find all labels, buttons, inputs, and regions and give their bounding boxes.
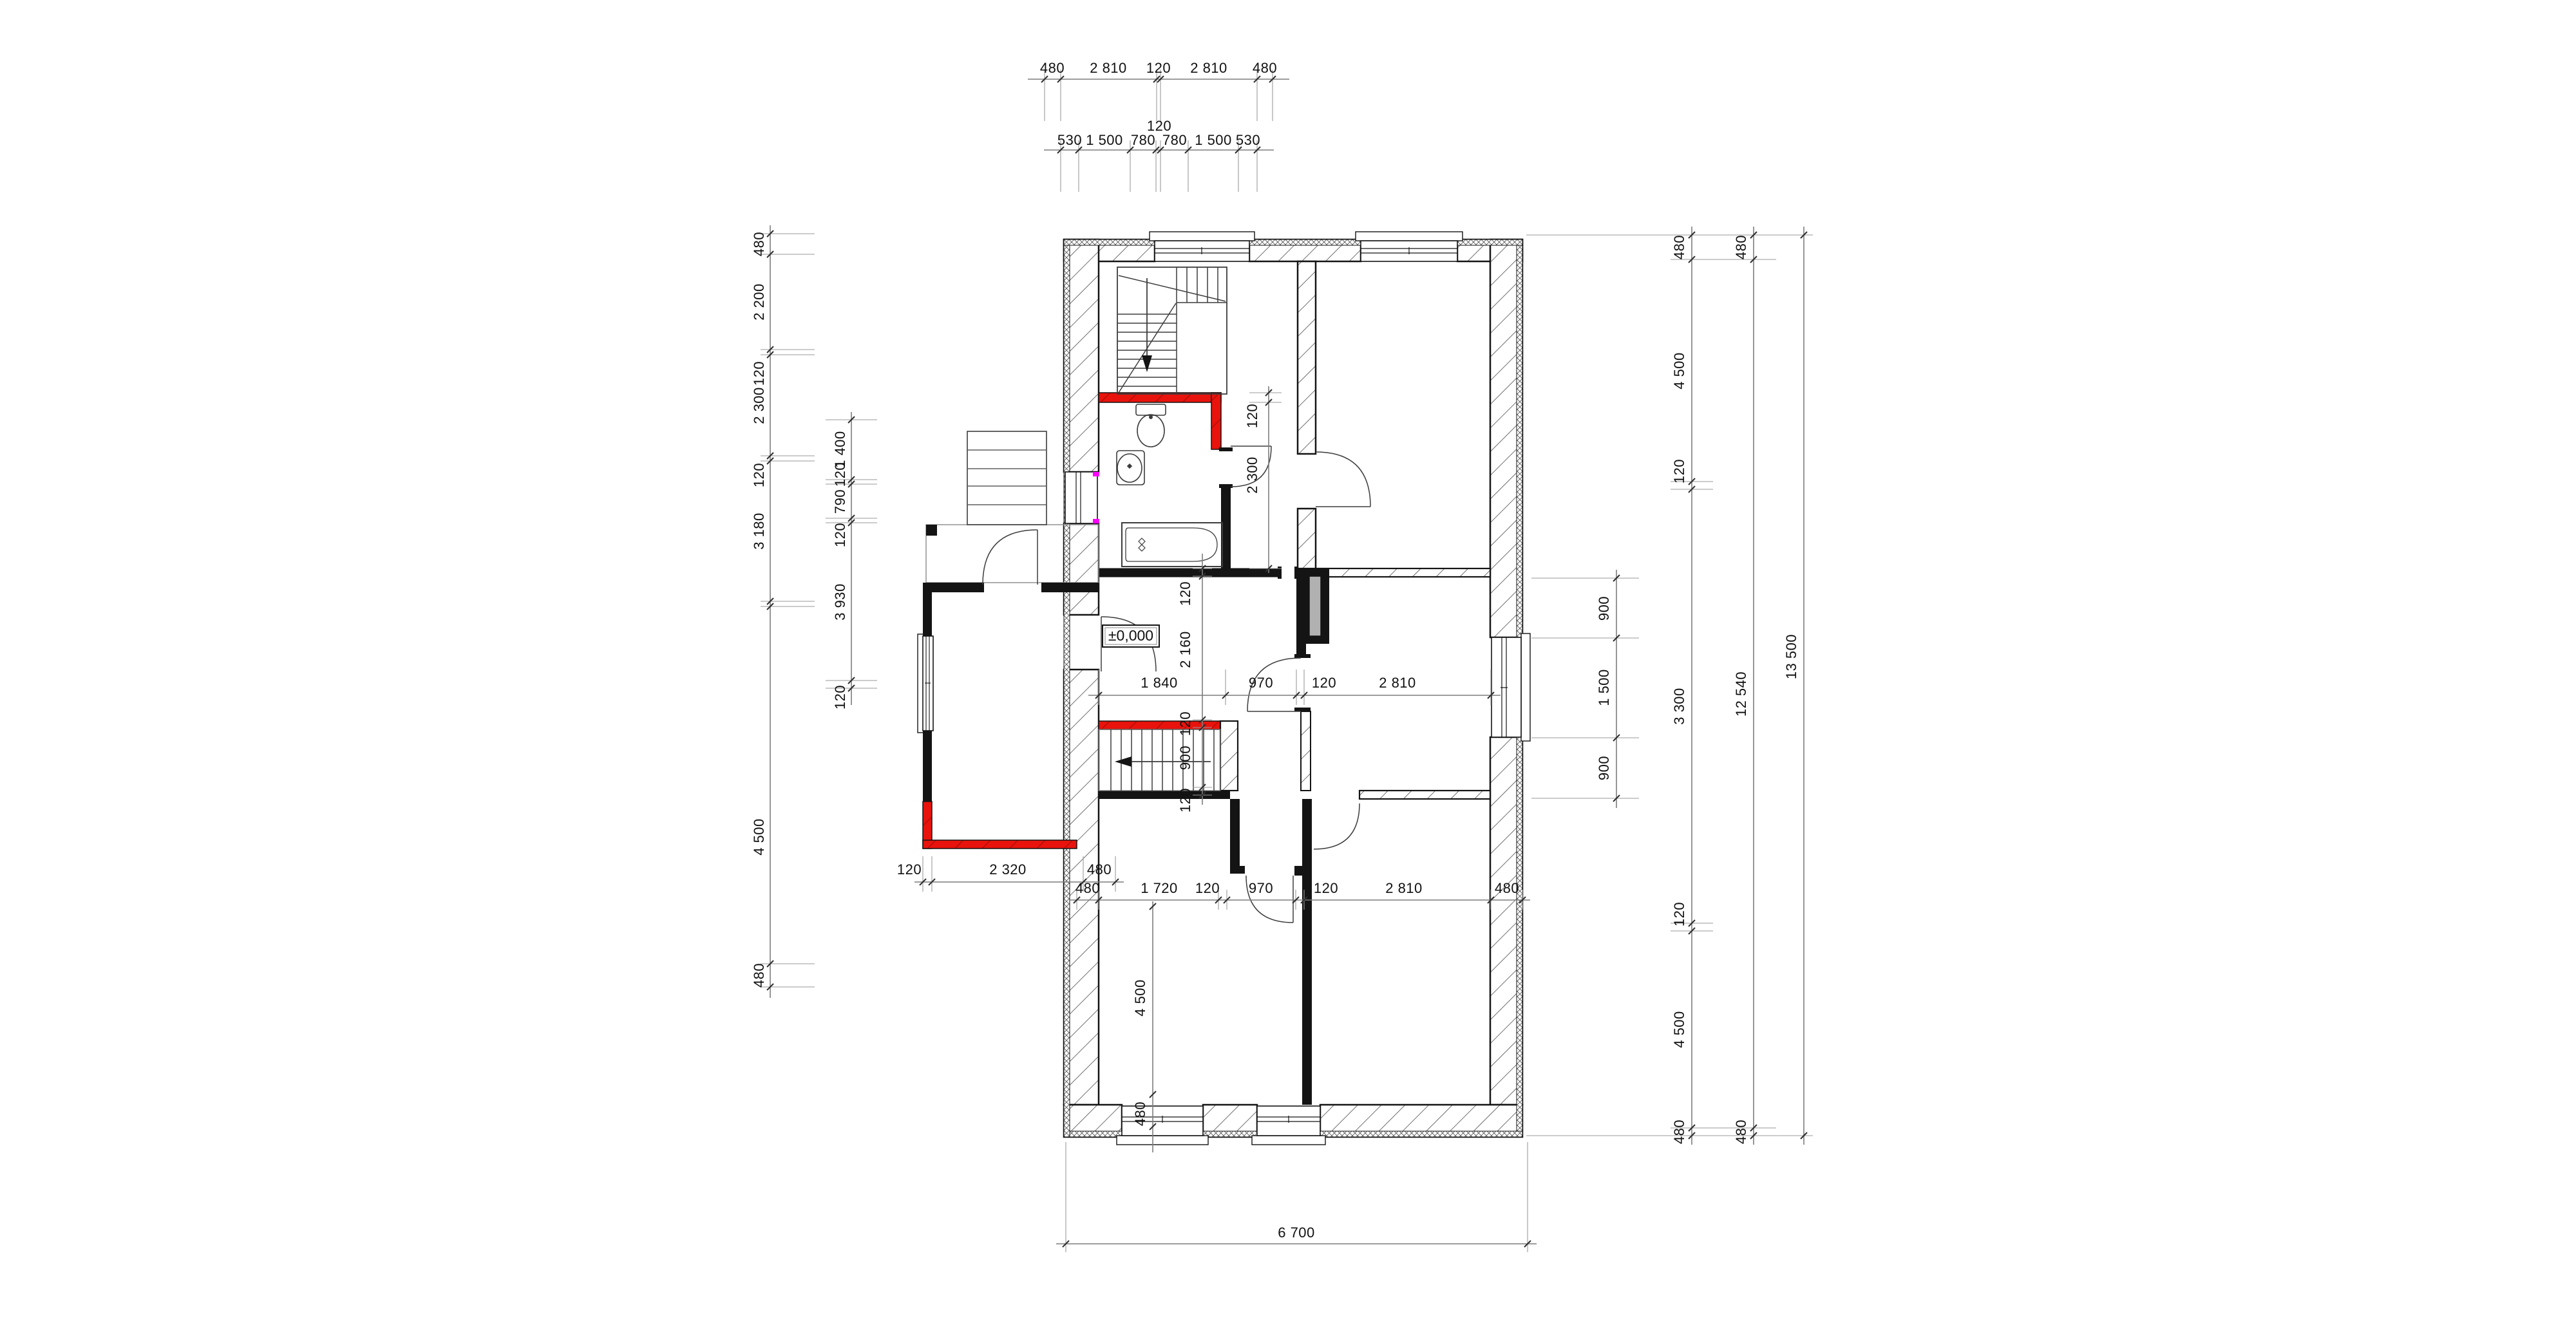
door-jamb [1219, 484, 1233, 488]
bathtub [1122, 523, 1222, 567]
wall-basement-stair-right [1220, 721, 1238, 791]
stair-direction-arrow [1142, 278, 1152, 372]
dim-label: 480 [1075, 880, 1100, 896]
dim-label: 4 500 [1132, 979, 1148, 1017]
dim-label: 480 [1087, 861, 1112, 877]
dim-label: 480 [1253, 60, 1277, 76]
dim-label: 1 500 [1195, 132, 1232, 148]
dim-label: 120 [1671, 902, 1687, 926]
dim-label: 480 [1495, 880, 1519, 896]
porch-top-wall-left [923, 583, 984, 592]
door-jamb [1294, 866, 1302, 876]
door-top-right-room [1316, 452, 1370, 507]
dim-label: 120 [897, 861, 922, 877]
dim-label: 3 300 [1671, 688, 1687, 725]
bathroom [1117, 404, 1222, 567]
red-wall-porch-horizontal [923, 840, 1077, 849]
dim-label: 2 320 [989, 861, 1027, 877]
level-value: ±0,000 [1108, 627, 1153, 644]
dim-label: 2 810 [1379, 675, 1416, 691]
dim-label: 120 [751, 361, 767, 386]
window-bottom-1 [1117, 1106, 1208, 1145]
level-marker: ±0,000 [1103, 625, 1159, 647]
door-jamb [1294, 708, 1311, 711]
porch-top-wall-right [1041, 583, 1099, 592]
dim-label: 120 [1177, 788, 1193, 812]
dim-label: 2 160 [1177, 631, 1193, 668]
dim-label: 1 500 [1086, 132, 1123, 148]
sink [1117, 451, 1144, 485]
dim-label: 2 810 [1090, 60, 1127, 76]
dim-label: 120 [1244, 404, 1260, 428]
entry-steps [967, 431, 1046, 525]
dim-label: 120 [1671, 459, 1687, 483]
dim-label: 480 [1733, 1120, 1749, 1144]
floor-plan-canvas: ±0,000 [0, 0, 2576, 1323]
main-stair [1117, 267, 1227, 394]
drain-icon [1139, 538, 1145, 551]
window-bathroom [1065, 472, 1099, 523]
dim-label: 900 [1596, 596, 1612, 621]
dim-label: 120 [1146, 60, 1171, 76]
dim-label: 900 [1596, 756, 1612, 780]
dim-label: 120 [1177, 581, 1193, 606]
dim-label: 480 [1040, 60, 1065, 76]
terrace-post [926, 525, 937, 536]
dim-label: 120 [832, 462, 848, 487]
dimension-labels: 480 2 810 120 2 810 480 530 1 500 780 12… [751, 60, 1799, 1241]
porch-left-wall-lower [923, 731, 932, 802]
dim-label: 780 [1131, 132, 1155, 148]
window-top-2 [1356, 232, 1463, 261]
dim-label: 4 500 [1671, 1011, 1687, 1048]
dim-label: 790 [832, 489, 848, 514]
window-bottom-2 [1252, 1106, 1325, 1145]
dim-label: 1 720 [1141, 880, 1178, 896]
insulation-left [1064, 245, 1070, 1137]
dim-label: 2 300 [751, 387, 767, 424]
wall-h2-right [1359, 791, 1490, 799]
dim-label: 480 [751, 232, 767, 256]
dim-label: 4 500 [1671, 352, 1687, 389]
chimney-flue [1309, 576, 1321, 636]
wall-corridor-left [1230, 799, 1240, 874]
dim-label: 2 300 [1244, 456, 1260, 494]
door-middle-right-rear [1314, 803, 1359, 849]
door-terrace [983, 530, 1037, 585]
door-jamb [1230, 866, 1245, 874]
dim-label: 2 810 [1190, 60, 1227, 76]
dim-label: 120 [1195, 880, 1220, 896]
wall-corridor-right [1302, 799, 1312, 1105]
dim-label: 4 500 [751, 818, 767, 856]
red-wall-bathroom-corner [1211, 393, 1221, 449]
dim-label: 120 [832, 523, 848, 547]
winder-diagonal [1119, 276, 1226, 301]
dim-label: 2 810 [1385, 880, 1423, 896]
porch-left-wall-upper [923, 592, 932, 636]
dim-label: 480 [1671, 235, 1687, 259]
dim-label: 13 500 [1783, 634, 1799, 679]
toilet [1136, 404, 1166, 447]
dim-label: 120 [1177, 711, 1193, 736]
dim-label: 120 [832, 685, 848, 709]
dim-label: 480 [1671, 1120, 1687, 1144]
dim-label: 480 [1733, 235, 1749, 259]
wall-mid-left [1099, 568, 1280, 577]
dim-label: 120 [1314, 880, 1338, 896]
wall-midright-room-left-lower [1301, 711, 1311, 791]
dim-label: 480 [1132, 1102, 1148, 1126]
windows [918, 232, 1530, 1145]
window-right [1492, 633, 1530, 741]
dim-label: 1 500 [1596, 669, 1612, 706]
window-top-1 [1150, 232, 1255, 261]
window-porch [918, 634, 933, 733]
dim-label: 120 [751, 463, 767, 487]
dim-label: 12 540 [1733, 671, 1749, 717]
dim-label: 3 180 [751, 512, 767, 550]
dim-label: 480 [751, 963, 767, 988]
door-jamb [1294, 654, 1311, 658]
door-jamb [1219, 447, 1233, 451]
dim-label: 1 840 [1141, 675, 1178, 691]
dim-label: 120 [1312, 675, 1336, 691]
dim-label: 780 [1162, 132, 1187, 148]
dim-label: 970 [1249, 675, 1273, 691]
magenta-mark-bottom [1093, 519, 1099, 523]
partition-top-rooms-lower [1298, 509, 1316, 576]
partition-top-rooms-upper [1298, 261, 1316, 454]
dim-label: 970 [1249, 880, 1273, 896]
dim-label: 3 930 [832, 583, 848, 621]
dim-label: 6 700 [1278, 1224, 1315, 1241]
dim-label: 2 200 [751, 283, 767, 321]
dim-label: 900 [1177, 746, 1193, 770]
dim-label: 530 [1236, 132, 1260, 148]
door-jamb [1294, 567, 1298, 579]
magenta-mark-top [1093, 472, 1099, 476]
dim-label: 530 [1057, 132, 1082, 148]
